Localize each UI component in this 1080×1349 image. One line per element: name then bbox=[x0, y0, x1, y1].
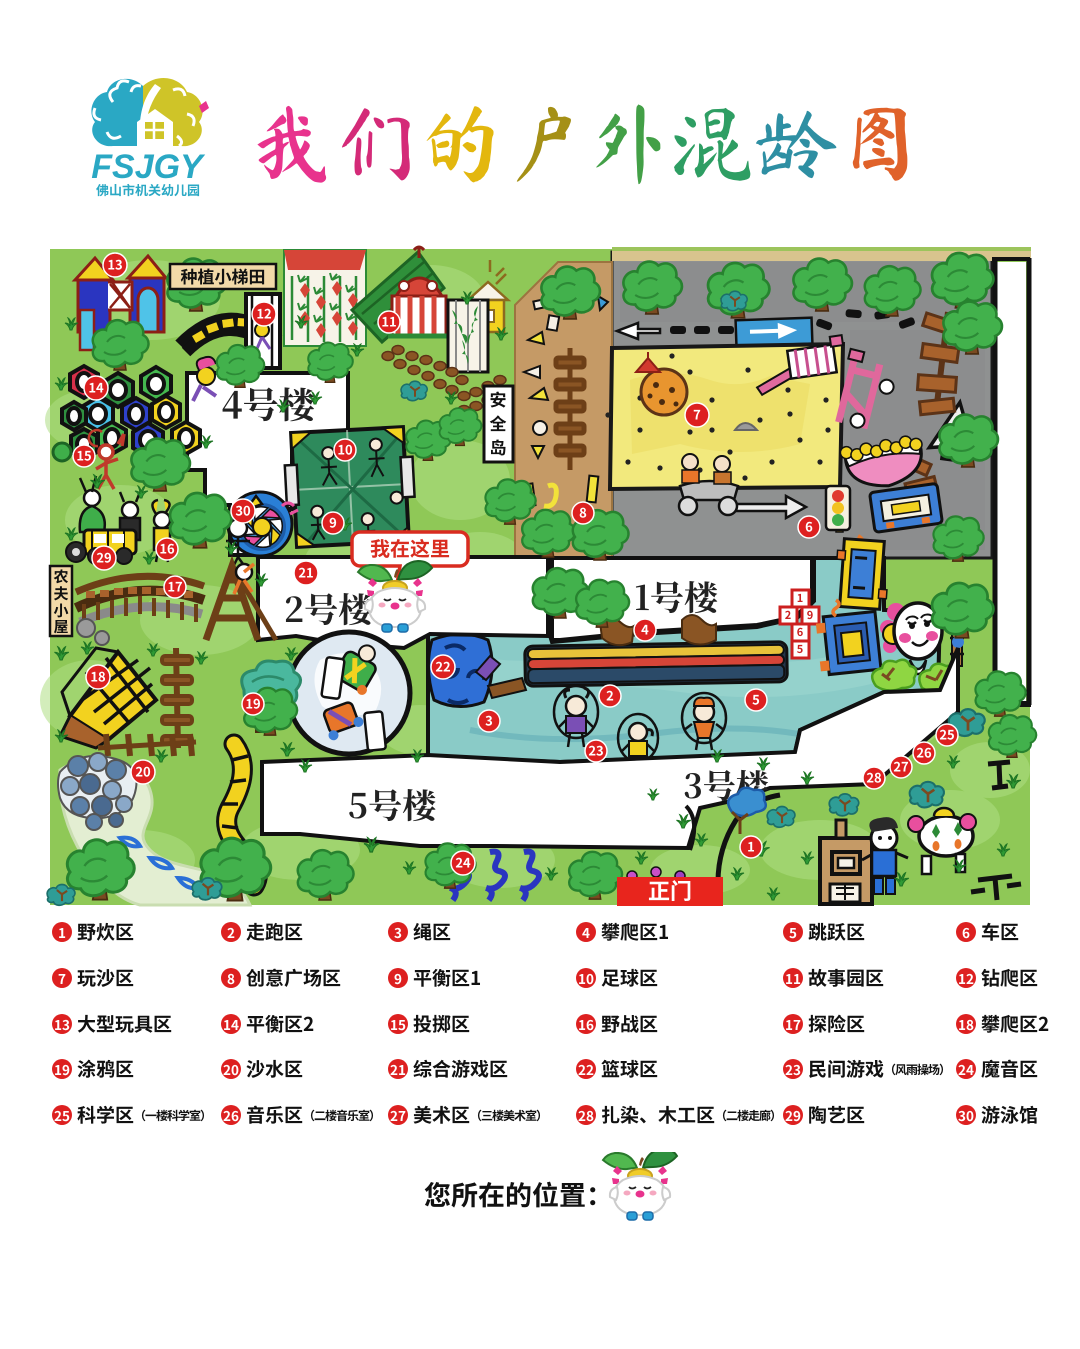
svg-text:13: 13 bbox=[107, 255, 122, 274]
svg-text:9: 9 bbox=[807, 607, 814, 623]
svg-text:15: 15 bbox=[76, 446, 91, 465]
svg-text:27: 27 bbox=[893, 757, 909, 776]
svg-text:6: 6 bbox=[797, 624, 804, 640]
svg-text:种植小梯田: 种植小梯田 bbox=[181, 263, 266, 288]
svg-text:22: 22 bbox=[435, 657, 450, 676]
svg-text:安: 安 bbox=[490, 386, 507, 411]
svg-text:14: 14 bbox=[88, 378, 104, 397]
svg-text:11: 11 bbox=[381, 312, 396, 331]
svg-text:29: 29 bbox=[96, 548, 111, 567]
svg-text:30: 30 bbox=[235, 501, 251, 520]
svg-text:屋: 屋 bbox=[53, 616, 68, 637]
svg-text:9: 9 bbox=[329, 513, 337, 532]
svg-text:3: 3 bbox=[485, 711, 493, 730]
svg-text:6: 6 bbox=[805, 517, 813, 536]
svg-text:19: 19 bbox=[245, 694, 260, 713]
svg-text:全: 全 bbox=[490, 410, 507, 435]
svg-text:正门: 正门 bbox=[648, 874, 692, 906]
svg-text:20: 20 bbox=[135, 762, 151, 781]
svg-text:4: 4 bbox=[641, 620, 649, 639]
svg-text:17: 17 bbox=[167, 577, 183, 596]
svg-text:21: 21 bbox=[298, 563, 313, 582]
svg-text:23: 23 bbox=[588, 741, 603, 760]
svg-text:1: 1 bbox=[747, 837, 755, 856]
svg-text:1: 1 bbox=[797, 590, 804, 606]
svg-text:7: 7 bbox=[693, 405, 701, 424]
svg-text:10: 10 bbox=[337, 440, 353, 459]
svg-text:18: 18 bbox=[90, 667, 106, 686]
svg-text:12: 12 bbox=[256, 304, 271, 323]
svg-text:24: 24 bbox=[455, 853, 471, 872]
svg-text:岛: 岛 bbox=[490, 434, 507, 459]
svg-text:8: 8 bbox=[579, 503, 587, 522]
svg-text:2号楼: 2号楼 bbox=[284, 583, 375, 632]
svg-text:5: 5 bbox=[797, 641, 804, 657]
svg-text:26: 26 bbox=[916, 743, 932, 762]
svg-text:5号楼: 5号楼 bbox=[348, 779, 439, 828]
svg-text:5: 5 bbox=[752, 690, 760, 709]
svg-text:2: 2 bbox=[785, 607, 792, 623]
svg-text:16: 16 bbox=[159, 539, 175, 558]
svg-text:25: 25 bbox=[939, 725, 954, 744]
svg-text:28: 28 bbox=[866, 768, 882, 787]
svg-text:2: 2 bbox=[606, 686, 614, 705]
svg-text:我在这里: 我在这里 bbox=[370, 533, 450, 562]
svg-text:1号楼: 1号楼 bbox=[634, 571, 721, 620]
